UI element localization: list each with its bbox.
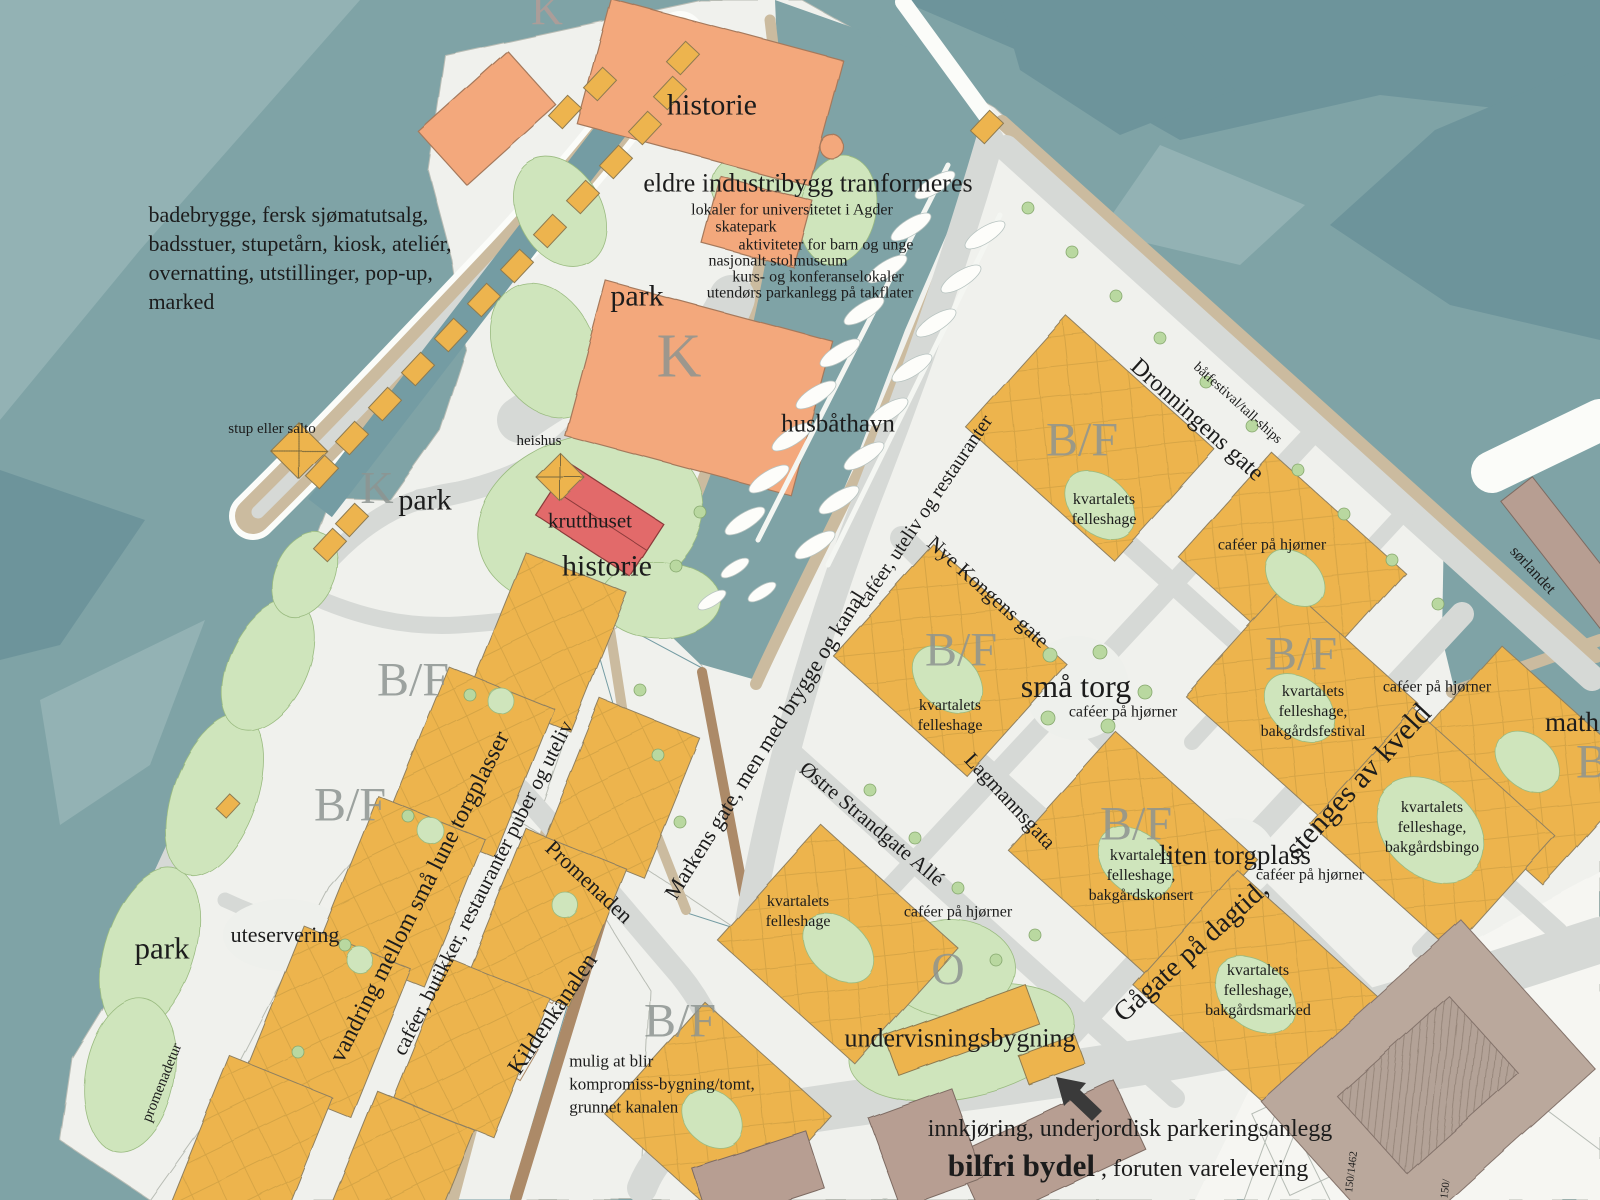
cafeer-hjorner-note: caféer på hjørner	[1383, 679, 1491, 698]
cafeer-hjorner-note: caféer på hjørner	[1218, 537, 1326, 556]
transform-item: utendørs parkanlegg på takflater	[707, 285, 914, 304]
felleshage-festival-note: kvartalets felleshage, bakgårdsfestival	[1261, 682, 1366, 742]
park-label-south: park	[134, 931, 189, 968]
transform-item: skatepark	[715, 219, 776, 238]
innkjoring-note: innkjøring, underjordisk parkeringsanleg…	[928, 1115, 1333, 1143]
stup-label: stup eller salto	[228, 421, 315, 439]
waterfront-program-note: badebrygge, fersk sjømatutsalg, badsstue…	[148, 200, 451, 316]
cafeer-hjorner-note: caféer på hjørner	[904, 904, 1012, 923]
bilfri-bydel-note: bilfri bydel, foruten varelevering	[948, 1148, 1309, 1184]
bf-marker: B/F	[314, 778, 386, 835]
bf-marker: B/F	[1265, 627, 1337, 684]
felleshage-bingo-note: kvartalets felleshage, bakgårdsbingo	[1385, 798, 1479, 858]
cafeer-hjorner-note: caféer på hjørner	[1256, 867, 1364, 886]
sma-torg-label: små torg	[1021, 668, 1132, 706]
felleshage-note: kvartalets felleshage	[766, 892, 831, 932]
plan-map: badebrygge, fersk sjømatutsalg, badsstue…	[0, 0, 1600, 1200]
letter-k: K	[360, 461, 393, 515]
bf-marker: B/F	[1100, 797, 1172, 854]
historie-label-north: historie	[667, 87, 757, 122]
letter-o: O	[931, 942, 964, 996]
undervisningsbygning-label: undervisningsbygning	[844, 1024, 1075, 1055]
uteservering-label: uteservering	[231, 922, 340, 948]
letter-k-faint: K	[531, 0, 563, 36]
letter-k: K	[657, 320, 702, 393]
bf-marker: B/F	[377, 653, 449, 710]
felleshage-marked-note: kvartalets felleshage, bakgårdsmarked	[1205, 961, 1311, 1021]
cadastral-number: 150/	[1438, 1179, 1453, 1200]
husbathavn-label: husbåthavn	[781, 409, 895, 439]
kompromiss-note: mulig at blir kompromiss-bygning/tomt, g…	[569, 1051, 755, 1120]
bf-marker: B/F	[1576, 735, 1600, 792]
bilfri-bydel-bold: bilfri bydel	[948, 1148, 1095, 1184]
bf-marker: B/F	[644, 994, 716, 1051]
park-label-west: park	[398, 482, 451, 517]
historie-label-center: historie	[562, 548, 652, 583]
felleshage-konsert-note: kvartalets felleshage, bakgårdskonsert	[1089, 846, 1194, 906]
heishus-label: heishus	[517, 433, 562, 451]
bilfri-bydel-rest: , foruten varelevering	[1101, 1156, 1308, 1183]
transform-heading: eldre industribygg tranformeres	[643, 169, 972, 200]
bf-marker: B/F	[925, 623, 997, 680]
felleshage-note: kvartalets felleshage	[918, 696, 983, 736]
bf-marker: B/F	[1046, 413, 1118, 470]
krutthuset-label: krutthuset	[548, 509, 632, 534]
cafeer-hjorner-note: caféer på hjørner	[1069, 704, 1177, 723]
park-label-north: park	[610, 278, 663, 313]
felleshage-note: kvartalets felleshage	[1072, 490, 1137, 530]
